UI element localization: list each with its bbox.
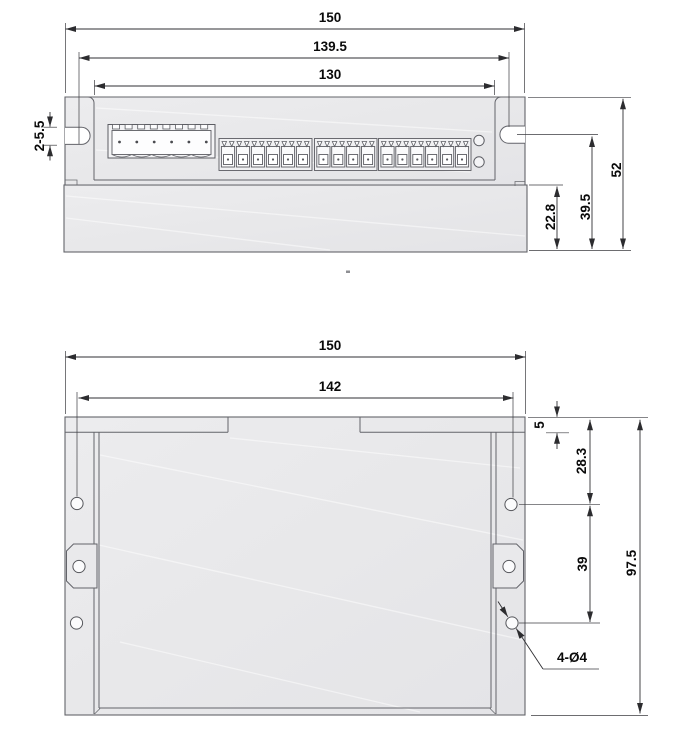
mounting-slot-left (65, 127, 90, 144)
connector-pin (153, 141, 156, 144)
terminal-screw (242, 158, 244, 160)
terminal-groups (219, 139, 471, 171)
dim-label-hole-callout: 4-Ø4 (557, 650, 588, 665)
connector-latch (150, 125, 157, 130)
connector-latch (163, 125, 170, 130)
connector-pin (205, 141, 208, 144)
mounting-hole (70, 617, 82, 629)
mounting-hole (503, 560, 515, 572)
terminal-screw (322, 158, 324, 160)
terminal-screw (416, 158, 418, 160)
led-indicator (474, 135, 484, 145)
dim-label-plan-hole-span: 142 (319, 379, 342, 394)
connector-latch (113, 125, 120, 130)
signal-connector (108, 125, 215, 159)
terminal-screw (337, 158, 339, 160)
front-view (64, 97, 527, 252)
connector-inner (112, 131, 211, 155)
connector-pin (170, 141, 173, 144)
dim-label-front-slot-height: 39.5 (578, 193, 593, 220)
dim-label-plan-overall-depth: 97.5 (624, 549, 639, 576)
stray-mark (346, 271, 350, 274)
dim-label-plan-hole-pitch: 39 (575, 556, 590, 571)
terminal-screw (352, 158, 354, 160)
dimension-drawing: 150 139.5 130 2-5.5 22.8 39.5 52 (0, 0, 695, 730)
mounting-hole (505, 498, 517, 510)
dim-label-front-side-slot: 2-5.5 (32, 120, 47, 151)
mounting-hole (73, 560, 85, 572)
dim-label-front-overall-width: 150 (319, 10, 342, 25)
mounting-hole (71, 497, 83, 509)
base-plate (64, 185, 527, 252)
led-indicator (474, 157, 484, 167)
connector-latch (201, 125, 208, 130)
terminal-screw (287, 158, 289, 160)
connector-latch (125, 125, 132, 130)
dim-label-front-slot-center-width: 139.5 (313, 39, 347, 54)
connector-pin (135, 141, 138, 144)
dim-label-plan-flange-depth: 5 (532, 421, 547, 429)
dim-label-front-overall-height: 52 (609, 162, 624, 177)
terminal-screw (227, 158, 229, 160)
terminal-screw (272, 158, 274, 160)
dim-label-front-base-height: 22.8 (543, 203, 558, 230)
terminal-screw (302, 158, 304, 160)
terminal-screw (257, 158, 259, 160)
dimension-drawing-page: 150 139.5 130 2-5.5 22.8 39.5 52 (0, 0, 695, 730)
connector-latch (188, 125, 195, 130)
terminal-screw (401, 158, 403, 160)
connector-pin (118, 141, 121, 144)
terminal-screw (461, 158, 463, 160)
terminal-screw (431, 158, 433, 160)
dim-label-front-panel-width: 130 (319, 67, 342, 82)
connector-latch (138, 125, 145, 130)
terminal-screw (446, 158, 448, 160)
mounting-hole (506, 617, 518, 629)
dim-label-plan-hole-top-offset: 28.3 (574, 447, 589, 474)
connector-latch (176, 125, 183, 130)
plan-view (65, 417, 525, 715)
terminal-screw (386, 158, 388, 160)
dim-label-plan-overall-width: 150 (319, 338, 342, 353)
connector-pin (188, 141, 191, 144)
terminal-screw (367, 158, 369, 160)
